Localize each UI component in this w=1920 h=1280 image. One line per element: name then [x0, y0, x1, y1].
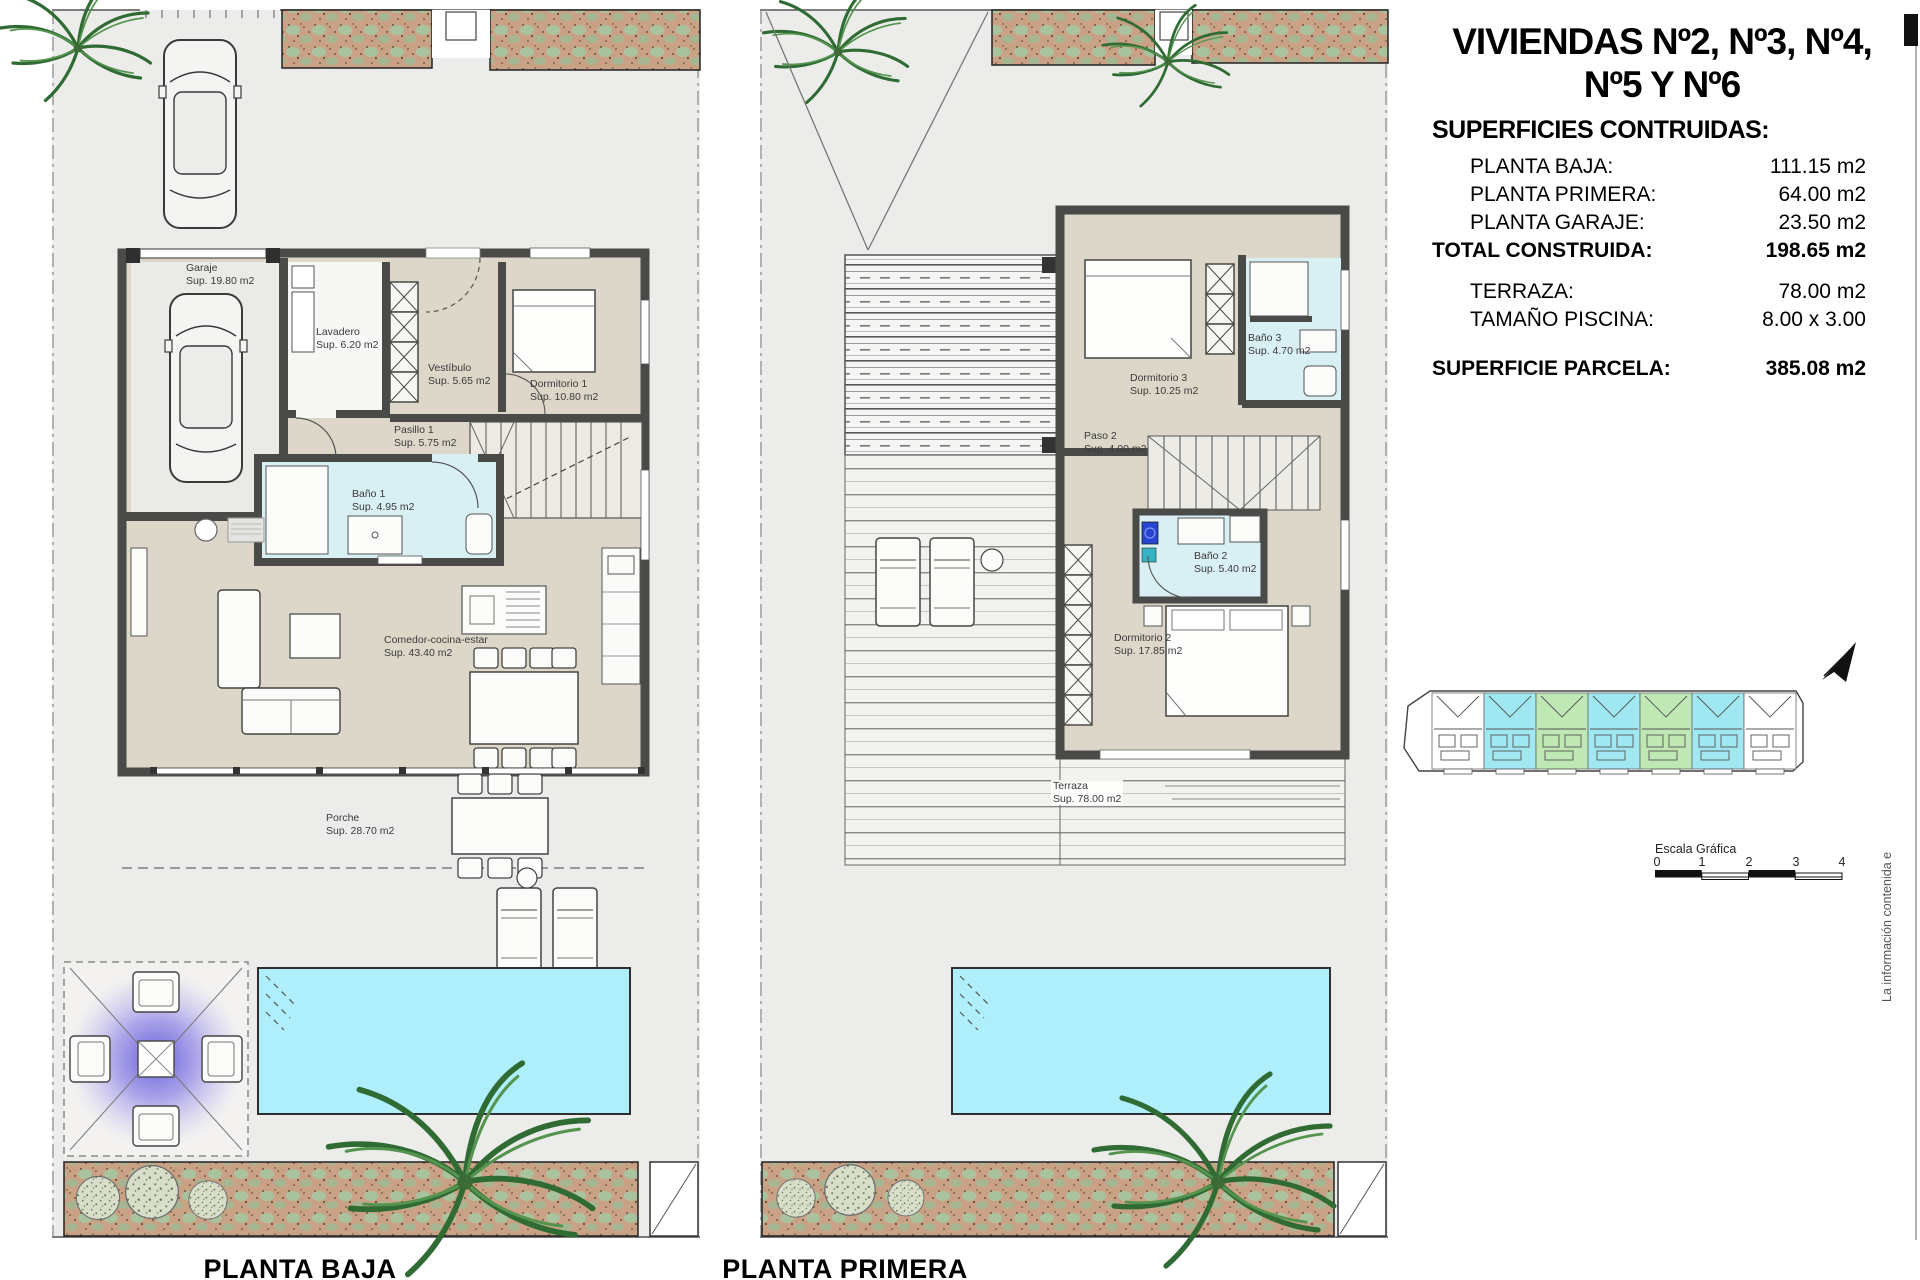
- scale-bar-label: Escala Gráfica: [1655, 842, 1736, 856]
- room-label-paso2: Paso 2Sup. 4.00 m2: [1084, 430, 1146, 455]
- room-label-dormitorio1: Dormitorio 1Sup. 10.80 m2: [530, 378, 598, 403]
- room-label-terraza: TerrazaSup. 78.00 m2: [1051, 780, 1123, 805]
- planter: [282, 10, 700, 70]
- tree-icon: [888, 1180, 924, 1216]
- planta-primera-plan: [760, 0, 1388, 1266]
- tree-icon: [76, 1176, 119, 1219]
- room-label-dormitorio3: Dormitorio 3Sup. 10.25 m2: [1130, 372, 1198, 397]
- surface-summary: SUPERFICIES CONTRUIDAS: PLANTA BAJA: 111…: [1432, 116, 1866, 383]
- scale-tick: 2: [1746, 855, 1753, 869]
- planta-baja-plan: [1, 0, 701, 1274]
- summary-row: PLANTA PRIMERA: 64.00 m2: [1432, 181, 1866, 209]
- car-icon: [159, 40, 241, 228]
- outdoor-table-icon: [452, 798, 548, 854]
- gate: [650, 1162, 698, 1236]
- tree-icon: [126, 1166, 179, 1219]
- room-label-bano3: Baño 3Sup. 4.70 m2: [1248, 332, 1310, 357]
- caption-planta-primera: PLANTA PRIMERA: [722, 1254, 968, 1280]
- lounger-icon: [930, 538, 974, 626]
- room-label-vestibulo: VestíbuloSup. 5.65 m2: [428, 362, 490, 387]
- summary-row-total: TOTAL CONSTRUIDA: 198.65 m2: [1432, 237, 1866, 265]
- room-label-comedor: Comedor-cocina-estarSup. 43.40 m2: [384, 634, 488, 659]
- summary-row: TERRAZA: 78.00 m2: [1432, 278, 1866, 306]
- room-label-bano2: Baño 2Sup. 5.40 m2: [1194, 550, 1256, 575]
- dining-table-icon: [470, 648, 578, 768]
- sofa-icon: [218, 590, 260, 688]
- glass-wall: [150, 767, 645, 774]
- side-disclaimer: La información contenida e: [1880, 852, 1894, 1002]
- room-label-dormitorio2: Dormitorio 2Sup. 17.85 m2: [1114, 632, 1182, 657]
- scale-tick: 3: [1793, 855, 1800, 869]
- scale-tick: 0: [1654, 855, 1661, 869]
- lounger-icon: [553, 888, 597, 976]
- summary-row: TAMAÑO PISCINA: 8.00 x 3.00: [1432, 306, 1866, 334]
- site-plan-key: [1404, 642, 1856, 774]
- scale-tick: 1: [1699, 855, 1706, 869]
- room-label-porche: PorcheSup. 28.70 m2: [326, 812, 394, 837]
- scale-bar: [1655, 870, 1842, 880]
- pergola-seating: [64, 962, 248, 1156]
- room-label-bano1: Baño 1Sup. 4.95 m2: [352, 488, 414, 513]
- lounger-icon: [876, 538, 920, 626]
- room-label-pasillo1: Pasillo 1Sup. 5.75 m2: [394, 424, 456, 449]
- north-arrow-icon: [1822, 642, 1856, 682]
- gate: [1338, 1162, 1386, 1236]
- car-icon: [165, 294, 247, 482]
- bed-icon: [513, 290, 595, 372]
- sheet-title-line1: VIVIENDAS Nº2, Nº3, Nº4,: [1412, 20, 1912, 63]
- sheet-title: VIVIENDAS Nº2, Nº3, Nº4, Nº5 Y Nº6: [1412, 20, 1912, 106]
- louver-pergola: [845, 255, 1060, 455]
- scale-tick: 4: [1839, 855, 1846, 869]
- summary-row: PLANTA GARAJE: 23.50 m2: [1432, 209, 1866, 237]
- tv-bench-icon: [131, 548, 147, 636]
- pool: [952, 968, 1330, 1114]
- floor-plan-sheet: GarajeSup. 19.80 m2 LavaderoSup. 6.20 m2…: [0, 0, 1920, 1280]
- caption-planta-baja: PLANTA BAJA: [204, 1254, 397, 1280]
- room-label-garaje: GarajeSup. 19.80 m2: [186, 262, 254, 287]
- tree-icon: [777, 1179, 815, 1217]
- coffee-table-icon: [290, 614, 340, 658]
- summary-row: PLANTA BAJA: 111.15 m2: [1432, 153, 1866, 181]
- tree-icon: [189, 1181, 227, 1219]
- room-label-lavadero: LavaderoSup. 6.20 m2: [316, 326, 378, 351]
- summary-row-parcela: SUPERFICIE PARCELA: 385.08 m2: [1432, 355, 1866, 383]
- pool: [258, 968, 630, 1114]
- sheet-title-line2: Nº5 Y Nº6: [1412, 63, 1912, 106]
- stairs: [1148, 436, 1320, 510]
- summary-heading: SUPERFICIES CONTRUIDAS:: [1432, 116, 1866, 145]
- tree-icon: [825, 1165, 875, 1215]
- lounger-icon: [497, 888, 541, 976]
- bed-icon: [1085, 260, 1191, 358]
